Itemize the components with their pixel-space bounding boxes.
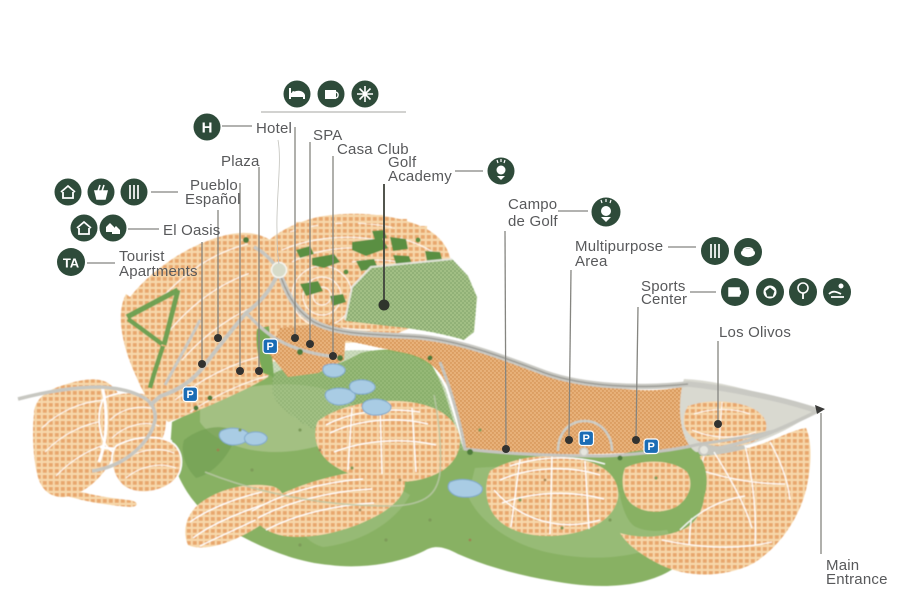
- svg-text:El Oasis: El Oasis: [163, 222, 220, 239]
- svg-text:Center: Center: [641, 291, 687, 308]
- svg-text:TA: TA: [63, 256, 80, 271]
- svg-text:Academy: Academy: [388, 168, 452, 185]
- svg-text:P: P: [583, 433, 590, 445]
- svg-text:Area: Area: [575, 253, 608, 270]
- svg-text:P: P: [267, 341, 274, 353]
- svg-text:Español: Español: [185, 191, 241, 208]
- svg-text:P: P: [648, 441, 655, 453]
- svg-text:Hotel: Hotel: [256, 120, 292, 137]
- svg-text:Plaza: Plaza: [221, 153, 260, 170]
- svg-text:Los Olivos: Los Olivos: [719, 324, 791, 341]
- svg-text:Apartments: Apartments: [119, 263, 198, 280]
- svg-text:H: H: [202, 120, 213, 137]
- svg-text:Campo: Campo: [508, 196, 557, 213]
- svg-text:Entrance: Entrance: [826, 571, 888, 588]
- svg-text:de Golf: de Golf: [508, 213, 558, 230]
- svg-text:P: P: [187, 389, 194, 401]
